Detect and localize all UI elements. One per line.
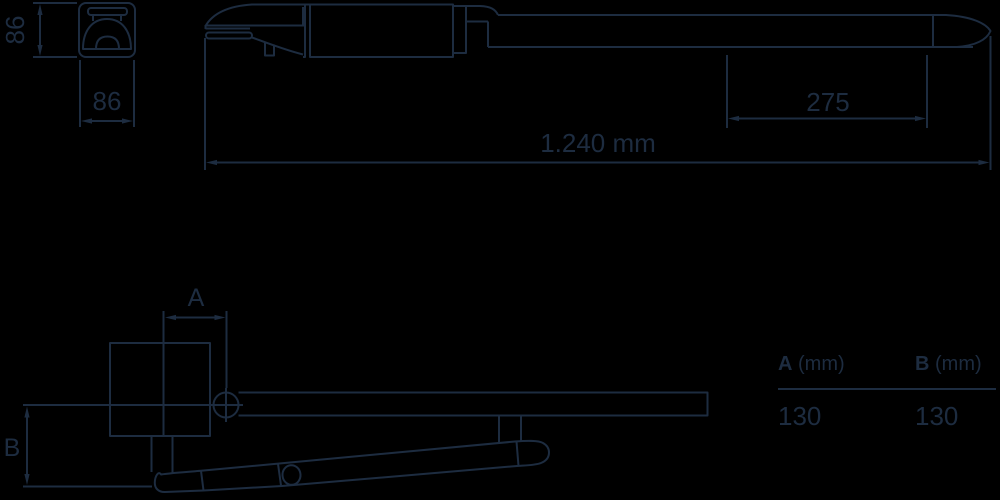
dimension-b-label: B [4, 434, 21, 462]
segment-dimension: 275 [727, 55, 927, 128]
front-fork-bar [206, 33, 252, 39]
value-a: 130 [778, 403, 915, 429]
technical-drawing-page: 86 86 [0, 0, 1000, 500]
pillar [110, 343, 210, 436]
arrowhead-left [728, 116, 739, 121]
arm-transition [466, 6, 498, 47]
dimension-table: A (mm) B (mm) 130 130 [778, 353, 998, 429]
arm-tube [488, 15, 973, 47]
dimension-table-values: 130 130 [778, 403, 998, 429]
release-knob [282, 464, 302, 485]
side-view: 275 1.240 mm [205, 5, 991, 171]
gate-bracket [499, 416, 521, 443]
actuator-rear-seam [201, 471, 204, 491]
column-b-header: B (mm) [915, 353, 998, 375]
dimension-b: B [4, 407, 152, 487]
actuator-front-seam [517, 441, 519, 466]
arrowhead-down [37, 45, 42, 56]
column-a-header: A (mm) [778, 353, 915, 375]
actuator-release-seam [278, 464, 281, 486]
arrowhead-left [81, 118, 92, 123]
section-top-rail [88, 8, 127, 15]
motor-body [310, 5, 453, 58]
column-a-key: A [778, 353, 792, 375]
arrowhead-left [206, 160, 217, 165]
dimension-a: A [165, 284, 227, 388]
body-right-flange [453, 6, 466, 53]
arrowhead-right [915, 116, 926, 121]
section-height-value: 86 [0, 16, 30, 45]
section-width-dimension: 86 [80, 60, 134, 127]
gate-leaf [239, 393, 708, 416]
arrowhead-right [122, 118, 133, 123]
plan-view: A B [4, 284, 708, 492]
dimension-a-label: A [188, 284, 205, 312]
arrowhead-up [37, 4, 42, 15]
table-divider [778, 388, 996, 390]
arrowhead-left [165, 315, 176, 320]
arrowhead-right [215, 315, 226, 320]
pillar-bracket [152, 436, 173, 473]
column-b-unit: (mm) [929, 353, 981, 375]
front-underside-curve [252, 38, 303, 55]
arrowhead-right [979, 160, 990, 165]
section-width-value: 86 [93, 86, 122, 116]
actuator-body [155, 441, 549, 492]
value-b: 130 [915, 403, 998, 429]
section-inner-arch [96, 37, 119, 50]
arrowhead-up [24, 407, 29, 418]
column-b-key: B [915, 353, 929, 375]
section-height-dimension: 86 [0, 3, 77, 57]
cross-section-view: 86 86 [0, 3, 135, 127]
section-dome [83, 19, 131, 49]
arrowhead-down [24, 474, 29, 485]
front-hood-top [206, 5, 454, 27]
dimension-table-header: A (mm) B (mm) [778, 353, 998, 375]
total-length-value: 1.240 mm [540, 128, 656, 158]
segment-dimension-value: 275 [806, 87, 849, 117]
column-a-unit: (mm) [792, 353, 844, 375]
front-plate [206, 25, 306, 29]
arm-tip [933, 15, 991, 47]
